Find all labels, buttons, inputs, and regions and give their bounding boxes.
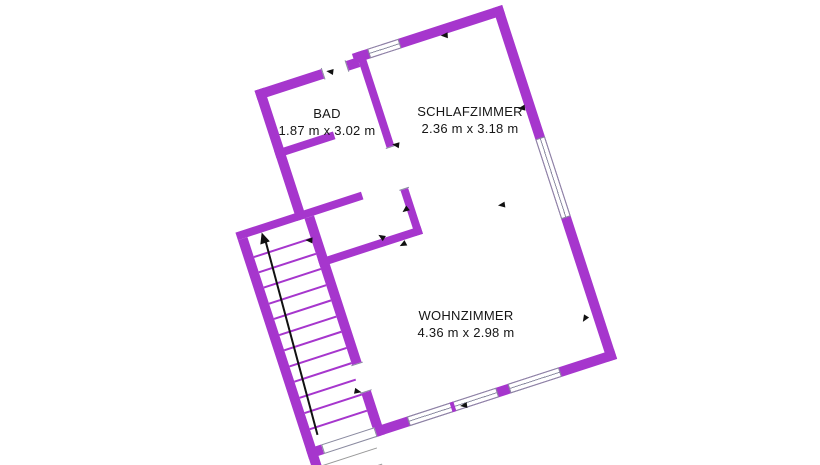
marker-arrow-icon <box>398 240 407 249</box>
room-dimensions: 4.36 m x 2.98 m <box>418 324 515 341</box>
window-right <box>535 136 570 219</box>
window-top <box>367 39 401 59</box>
stair-tread <box>259 253 317 273</box>
stair-tread <box>304 394 362 414</box>
marker-arrow-icon <box>354 388 362 395</box>
room-dimensions: 2.36 m x 3.18 m <box>417 120 523 137</box>
room-name: SCHLAFZIMMER <box>417 103 523 120</box>
marker-arrow-icon <box>441 32 448 38</box>
room-name: BAD <box>279 105 376 122</box>
door-schlafzimmer <box>386 145 409 191</box>
wall-divider-bad-schlafzimmer <box>356 50 423 236</box>
marker-arrow-icon <box>498 202 506 209</box>
marker-arrow-icon <box>326 68 334 75</box>
marker-arrow-icon <box>460 402 468 409</box>
marker-arrow-icon <box>305 237 312 243</box>
marker-arrow-icon <box>392 141 400 148</box>
window-bottom-small <box>508 367 562 393</box>
room-label-wohnzimmer: WOHNZIMMER 4.36 m x 2.98 m <box>418 307 515 341</box>
stair-direction-arrow-icon <box>257 231 270 245</box>
wall-hall-bottom <box>318 226 423 267</box>
room-name: WOHNZIMMER <box>418 307 515 324</box>
stair-tread <box>310 410 368 430</box>
marker-arrow-icon <box>580 314 589 323</box>
room-label-bad: BAD 1.87 m x 3.02 m <box>279 105 376 139</box>
room-label-schlafzimmer: SCHLAFZIMMER 2.36 m x 3.18 m <box>417 103 523 137</box>
door-bad-top <box>321 60 349 79</box>
floor-plan-canvas: BAD 1.87 m x 3.02 m SCHLAFZIMMER 2.36 m … <box>0 0 820 465</box>
room-dimensions: 1.87 m x 3.02 m <box>279 122 376 139</box>
